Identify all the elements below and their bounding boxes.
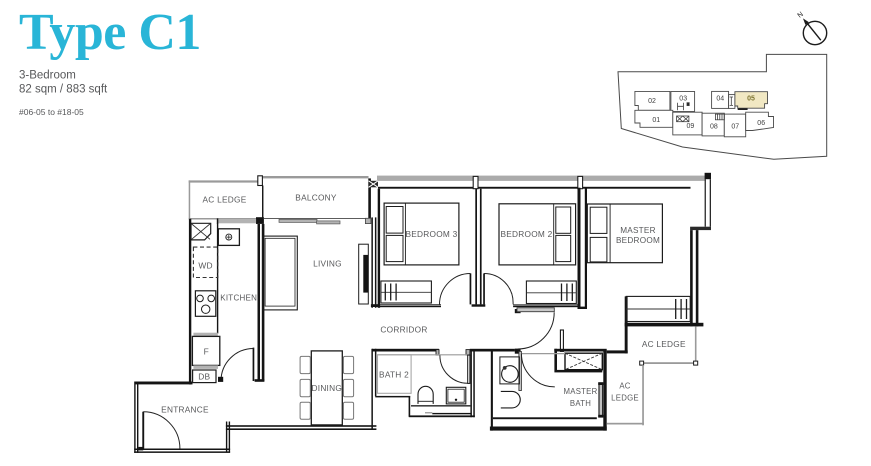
- svg-text:ENTRANCE: ENTRANCE: [161, 405, 209, 415]
- svg-text:BATH: BATH: [570, 399, 591, 408]
- svg-text:CORRIDOR: CORRIDOR: [380, 325, 427, 335]
- svg-text:WD: WD: [198, 260, 212, 270]
- svg-text:AC LEDGE: AC LEDGE: [642, 339, 686, 349]
- svg-text:LEDGE: LEDGE: [611, 394, 639, 403]
- svg-text:3-Bedroom: 3-Bedroom: [19, 70, 76, 82]
- svg-text:01: 01: [652, 117, 660, 124]
- svg-text:BATH 2: BATH 2: [379, 370, 409, 380]
- svg-text:DINING: DINING: [312, 383, 343, 393]
- svg-text:BALCONY: BALCONY: [295, 193, 337, 203]
- svg-text:08: 08: [710, 123, 718, 130]
- svg-text:BEDROOM 3: BEDROOM 3: [405, 229, 457, 239]
- svg-text:DB: DB: [198, 372, 210, 382]
- svg-text:02: 02: [648, 98, 656, 105]
- svg-text:AC: AC: [619, 382, 630, 391]
- svg-text:82 sqm / 883 sqft: 82 sqm / 883 sqft: [19, 84, 108, 96]
- svg-text:09: 09: [687, 123, 695, 130]
- svg-text:AC LEDGE: AC LEDGE: [203, 194, 247, 204]
- svg-text:07: 07: [731, 123, 739, 130]
- svg-text:06: 06: [757, 120, 765, 127]
- svg-text:LIVING: LIVING: [313, 259, 342, 269]
- svg-text:Type C1: Type C1: [19, 4, 201, 61]
- svg-text:BEDROOM 2: BEDROOM 2: [500, 229, 552, 239]
- svg-text:BEDROOM: BEDROOM: [616, 236, 660, 245]
- svg-text:N: N: [796, 11, 804, 20]
- svg-text:05: 05: [747, 96, 755, 103]
- svg-text:04: 04: [716, 95, 724, 102]
- svg-text:F: F: [204, 347, 209, 357]
- svg-text:#06-05 to #18-05: #06-05 to #18-05: [19, 107, 84, 117]
- svg-text:03: 03: [679, 95, 687, 102]
- svg-text:MASTER: MASTER: [564, 387, 598, 396]
- svg-text:KITCHEN: KITCHEN: [220, 294, 257, 303]
- svg-text:MASTER: MASTER: [620, 226, 656, 235]
